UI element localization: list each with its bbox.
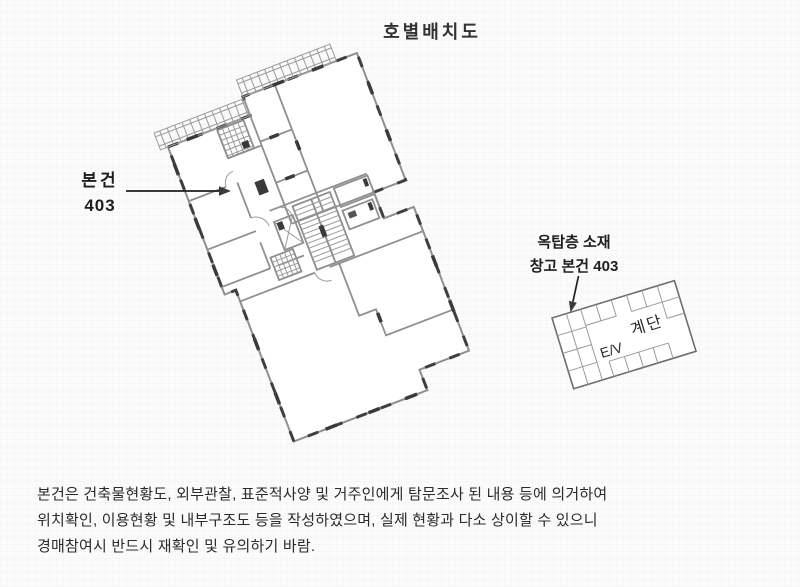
scanned-document-page: E/V 계단 호별배치도 본건 403 옥탑층 소재 창고 본건 403 본건은… [0,0,800,587]
storage-arrow [569,276,579,313]
page-title: 호별배치도 [352,18,512,44]
storage-label: 옥탑층 소재 창고 본건 403 [494,231,654,279]
disclaimer-text: 본건은 건축물현황도, 외부관찰, 표준적사양 및 거주인에게 탐문조사 된 내… [37,482,777,560]
unit-403-label-line1: 본건 [74,168,126,193]
unit-403-label-line2: 403 [74,193,126,218]
storage-label-line2: 창고 본건 403 [494,255,654,279]
main-floor-plan [147,36,481,451]
disclaimer-line1: 본건은 건축물현황도, 외부관찰, 표준적사양 및 거주인에게 탐문조사 된 내… [37,482,777,508]
disclaimer-line3: 경매참여시 반드시 재확인 및 유의하기 바람. [37,534,777,560]
disclaimer-line2: 위치확인, 이용현황 및 내부구조도 등을 작성하였으며, 실제 현황과 다소 … [37,508,777,534]
storage-label-line1: 옥탑층 소재 [494,231,654,255]
unit-403-label: 본건 403 [74,168,126,218]
